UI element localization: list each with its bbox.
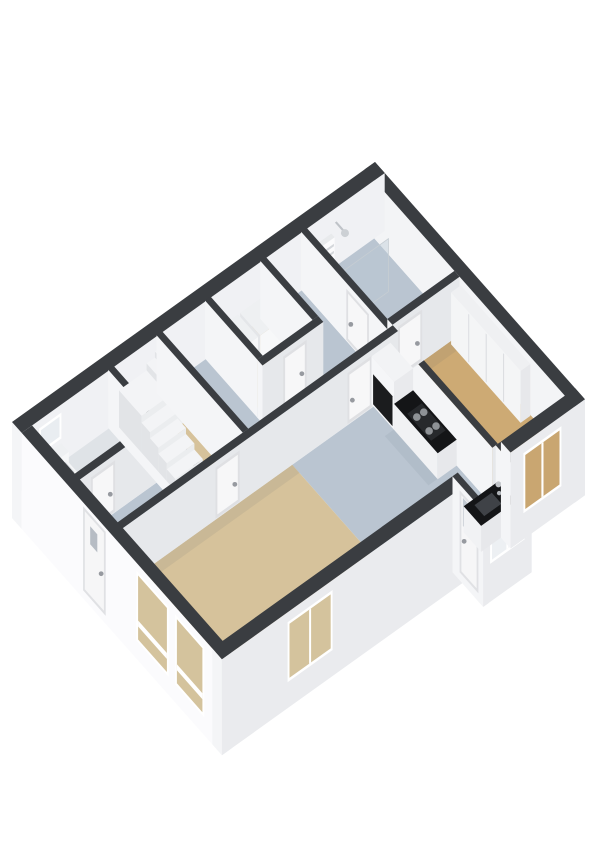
wall-se-west-left (212, 648, 222, 755)
door-wc-handle (108, 492, 113, 497)
burner-1 (413, 413, 421, 421)
wardrobe-right (521, 364, 531, 423)
wardrobe-seam-1 (468, 314, 469, 363)
window-living-se-mullion (309, 608, 311, 664)
wall-utility-south-left (257, 360, 262, 424)
burner-4 (432, 422, 440, 430)
floorplan-canvas (0, 0, 600, 848)
wall-se-east-left (501, 442, 511, 549)
faucet-base (497, 491, 501, 495)
window-bedroom-mullion (541, 442, 543, 498)
door-living-handle (232, 482, 237, 487)
door-utility-handle (299, 371, 304, 376)
door-back-handle (462, 539, 467, 544)
door-kitchen-handle (350, 398, 355, 403)
floorplan-3d (0, 0, 600, 848)
wall-nw-left (12, 422, 22, 529)
burner-3 (420, 408, 428, 416)
faucet (495, 481, 501, 487)
wardrobe-seam-3 (503, 353, 504, 402)
door-bedroom-handle (415, 341, 420, 346)
wardrobe-seam-2 (486, 333, 487, 382)
burner-2 (425, 427, 433, 435)
door-bathroom-handle (348, 322, 353, 327)
door-front-handle (99, 571, 104, 576)
shower-head (341, 229, 349, 237)
